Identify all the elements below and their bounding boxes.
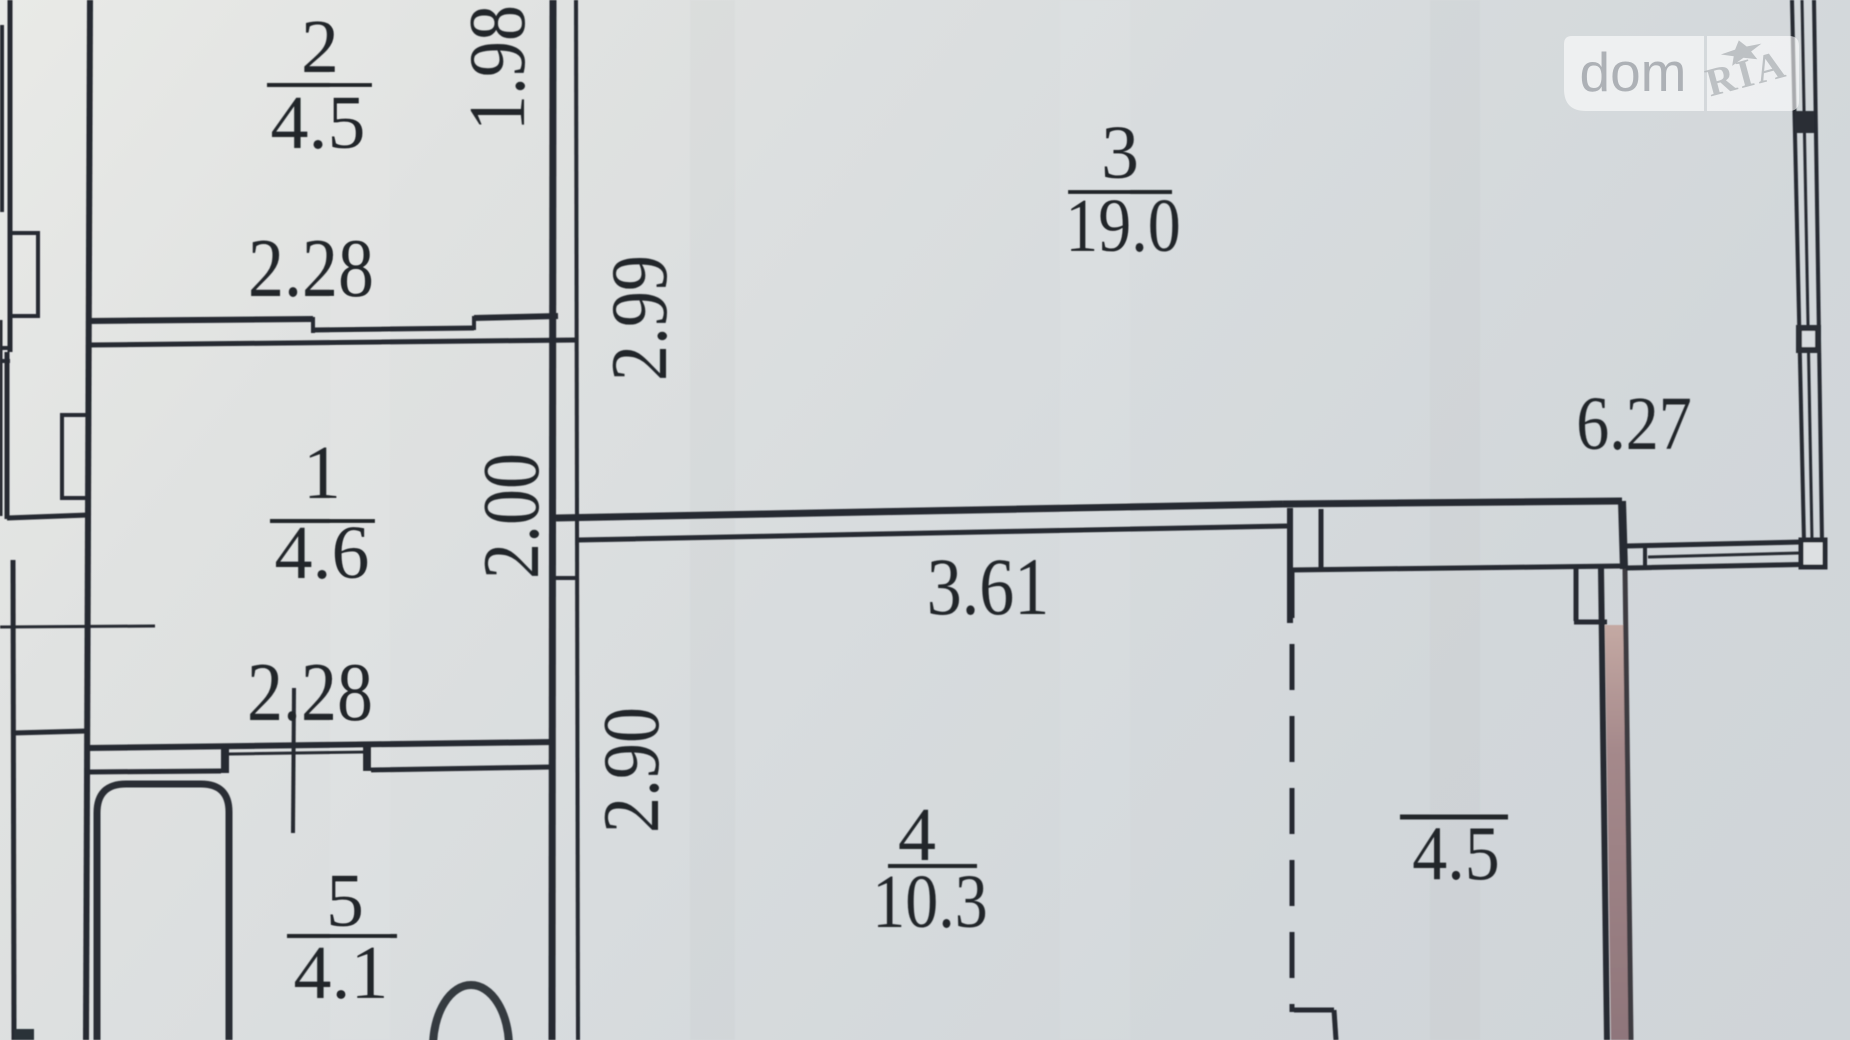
svg-text:4.5: 4.5 [271, 81, 366, 165]
svg-text:4.6: 4.6 [275, 511, 370, 595]
svg-text:6.27: 6.27 [1576, 382, 1691, 467]
svg-text:2.90: 2.90 [586, 707, 676, 833]
svg-text:4.5: 4.5 [1412, 810, 1500, 896]
svg-text:3: 3 [1101, 111, 1139, 195]
svg-text:dom: dom [1580, 41, 1687, 103]
svg-text:3.61: 3.61 [927, 542, 1049, 632]
svg-text:2.28: 2.28 [247, 646, 373, 738]
svg-text:2.28: 2.28 [248, 222, 374, 314]
svg-text:2: 2 [301, 5, 339, 89]
svg-text:19.0: 19.0 [1065, 184, 1180, 269]
svg-text:10.3: 10.3 [872, 860, 987, 945]
svg-text:4.1: 4.1 [294, 931, 389, 1015]
svg-text:2.99: 2.99 [594, 255, 684, 381]
svg-text:2.00: 2.00 [466, 453, 556, 579]
svg-text:1: 1 [303, 431, 341, 515]
svg-text:1.98: 1.98 [452, 5, 542, 131]
